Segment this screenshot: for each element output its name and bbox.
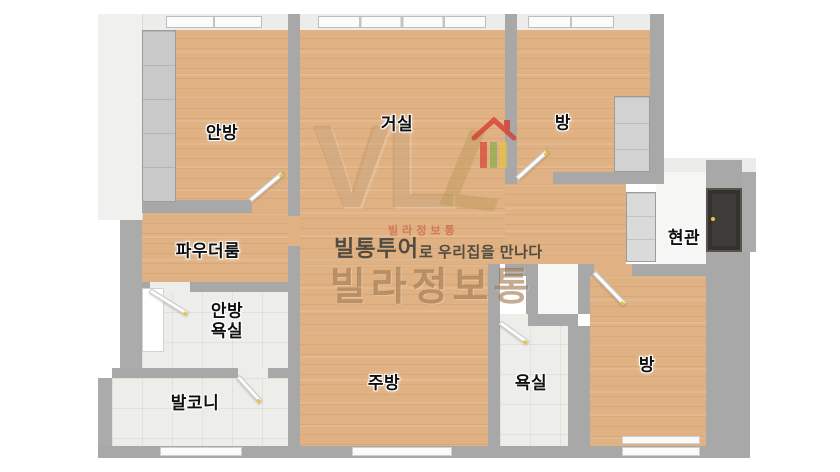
wall-center-column-left <box>288 213 300 446</box>
floor-corridor <box>538 264 578 314</box>
shoe-cabinet-entrance <box>626 192 656 262</box>
wall-corridor-right <box>578 276 590 314</box>
door-opening-master <box>252 200 288 213</box>
label-balcony: 발코니 <box>171 389 219 414</box>
wall-left-outer-lower <box>98 378 112 452</box>
label-kitchen: 주방 <box>368 369 400 394</box>
door-opening-balcony <box>238 368 268 378</box>
window-room-bottom-right-sill <box>622 436 700 444</box>
wall-master-living-divider <box>288 14 300 213</box>
floor-living-room <box>300 28 505 264</box>
label-room-bottom-right: 방 <box>639 351 655 376</box>
closet-room-top-right <box>614 96 650 172</box>
floorplan-canvas: VL L 빌라정보통 빌통투어 로 우리집을 만나다 빌라정보통 안방 거실 방… <box>0 0 840 472</box>
wall-left-outer-mid <box>120 220 142 378</box>
wall-room-top-right-right <box>650 14 664 184</box>
label-bathroom: 욕실 <box>515 369 547 394</box>
wardrobe-master-bedroom <box>142 30 176 202</box>
window-balcony-bottom <box>160 447 242 456</box>
door-opening-powder <box>288 216 300 246</box>
wall-right-outer-lower <box>706 252 750 446</box>
label-powder-room: 파우더룸 <box>176 237 241 262</box>
floor-hallway <box>505 184 626 264</box>
label-entrance: 현관 <box>668 224 700 249</box>
wall-living-roomtr-divider <box>505 14 517 172</box>
window-master-bedroom <box>166 16 262 28</box>
label-master-bathroom: 안방 욕실 <box>211 301 243 340</box>
wall-bathroom-right <box>568 326 590 446</box>
label-master-bathroom-line2: 욕실 <box>211 321 243 341</box>
wall-balcony-top <box>112 368 300 378</box>
label-master-bedroom: 안방 <box>206 119 238 144</box>
front-door-knob <box>711 217 715 221</box>
floor-kitchen <box>300 264 488 446</box>
wall-corridor-left <box>526 264 538 314</box>
label-room-top-right: 방 <box>555 109 571 134</box>
window-room-bottom-right-bottom <box>622 447 700 456</box>
window-living-room <box>318 16 486 28</box>
label-master-bathroom-line1: 안방 <box>211 301 243 321</box>
wall-kitchen-right <box>488 264 500 446</box>
window-kitchen-bottom <box>352 447 452 456</box>
window-room-top-right <box>528 16 614 28</box>
wall-left-outer-upper <box>98 14 143 220</box>
label-living-room: 거실 <box>381 110 413 135</box>
wall-right-outer-upper <box>742 158 756 252</box>
